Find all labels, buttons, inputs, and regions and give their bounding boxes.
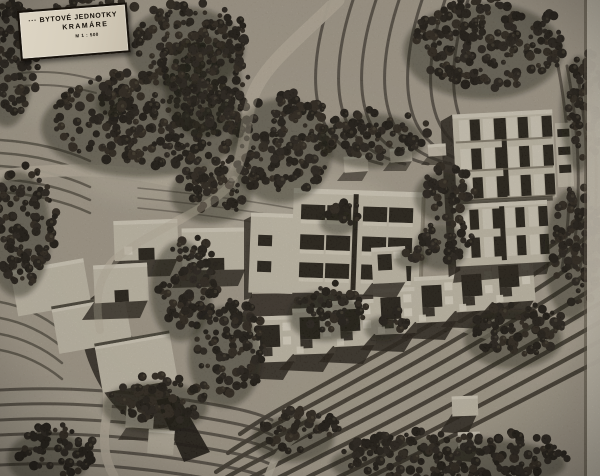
title-card: ··· BYTOVÉ JEDNOTKY KRAMÁRE M 1 : 500 xyxy=(17,2,131,60)
model-photograph: ··· BYTOVÉ JEDNOTKY KRAMÁRE M 1 : 500 xyxy=(0,0,600,476)
model-canvas xyxy=(0,0,600,476)
